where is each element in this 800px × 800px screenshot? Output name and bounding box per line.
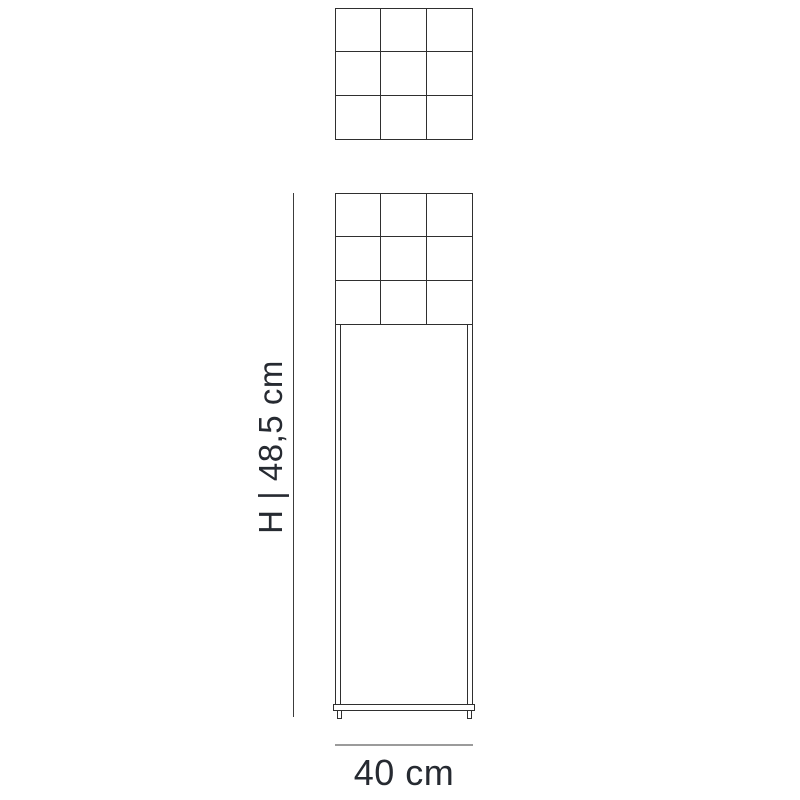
grid-cell [336, 237, 381, 280]
base-bar [333, 704, 475, 711]
top-view-grid [335, 8, 473, 140]
grid-cell [381, 237, 426, 280]
grid-cell [427, 281, 472, 324]
front-view-body-inner-panel [340, 325, 468, 705]
height-dimension-line [293, 193, 295, 717]
grid-cell [427, 237, 472, 280]
grid-cell [381, 52, 426, 95]
grid-cell [427, 96, 472, 139]
grid-cell [336, 281, 381, 324]
grid-cell [381, 9, 426, 52]
height-dimension-label: H | 48,5 cm [252, 360, 290, 534]
grid-cell [381, 96, 426, 139]
grid-cell [381, 281, 426, 324]
right-foot [467, 711, 472, 719]
grid-cell [381, 194, 426, 237]
front-view-grid [335, 193, 473, 325]
grid-cell [336, 9, 381, 52]
grid-cell [336, 52, 381, 95]
grid-cell [427, 194, 472, 237]
left-foot [337, 711, 342, 719]
width-dimension-label: 40 cm [320, 752, 488, 794]
front-view-body [335, 325, 473, 705]
grid-cell [336, 96, 381, 139]
dimension-diagram: H | 48,5 cm 40 cm [0, 0, 800, 800]
grid-cell [427, 9, 472, 52]
grid-cell [336, 194, 381, 237]
grid-cell [427, 52, 472, 95]
width-dimension-line [335, 744, 473, 746]
